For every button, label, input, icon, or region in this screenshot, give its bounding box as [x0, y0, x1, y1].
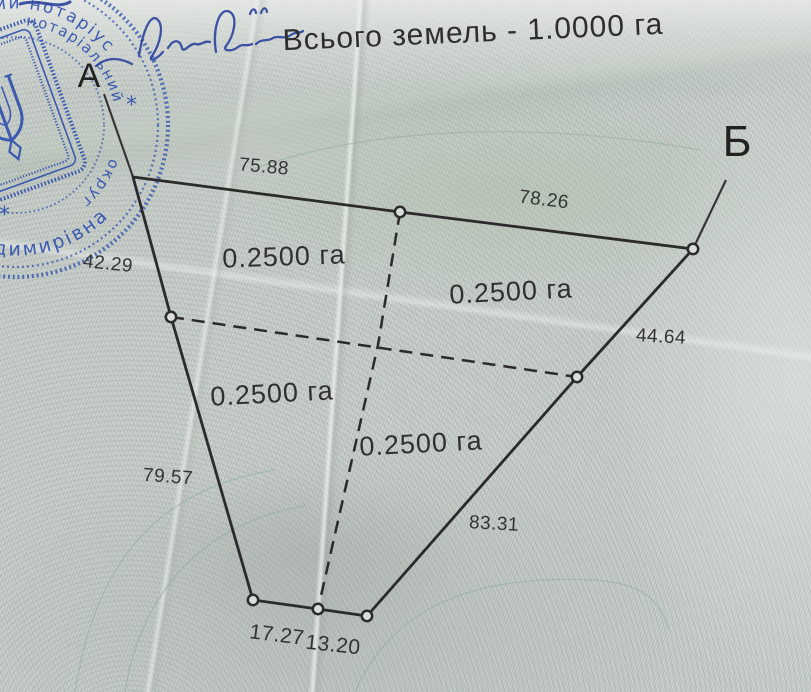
area-label-plot-4: 0.2500 га — [359, 427, 484, 460]
dimension-label-44-64: 44.64 — [636, 326, 687, 348]
document-title: Всього земель - 1.0000 га — [282, 10, 664, 57]
dimension-label-75-88: 75.88 — [238, 155, 290, 178]
area-label-plot-1: 0.2500 га — [222, 241, 346, 272]
dimension-label-83-31: 83.31 — [469, 513, 520, 535]
dimension-label-17-27: 17.27 — [248, 621, 305, 649]
dimension-label-79-57: 79.57 — [142, 466, 193, 488]
scanned-survey-document: ий нотаріус нотаріальний округ а Володим… — [0, 0, 811, 692]
area-label-plot-3: 0.2500 га — [210, 377, 335, 410]
dimension-label-78-26: 78.26 — [518, 188, 570, 213]
area-label-plot-2: 0.2500 га — [449, 275, 574, 308]
text-labels: Всього земель - 1.0000 га А Б 75.88 78.2… — [0, 0, 811, 692]
corner-label-b: Б — [723, 120, 752, 164]
dimension-label-13-20: 13.20 — [305, 632, 362, 659]
corner-label-a: А — [78, 59, 101, 93]
dimension-label-42-29: 42.29 — [82, 252, 134, 276]
